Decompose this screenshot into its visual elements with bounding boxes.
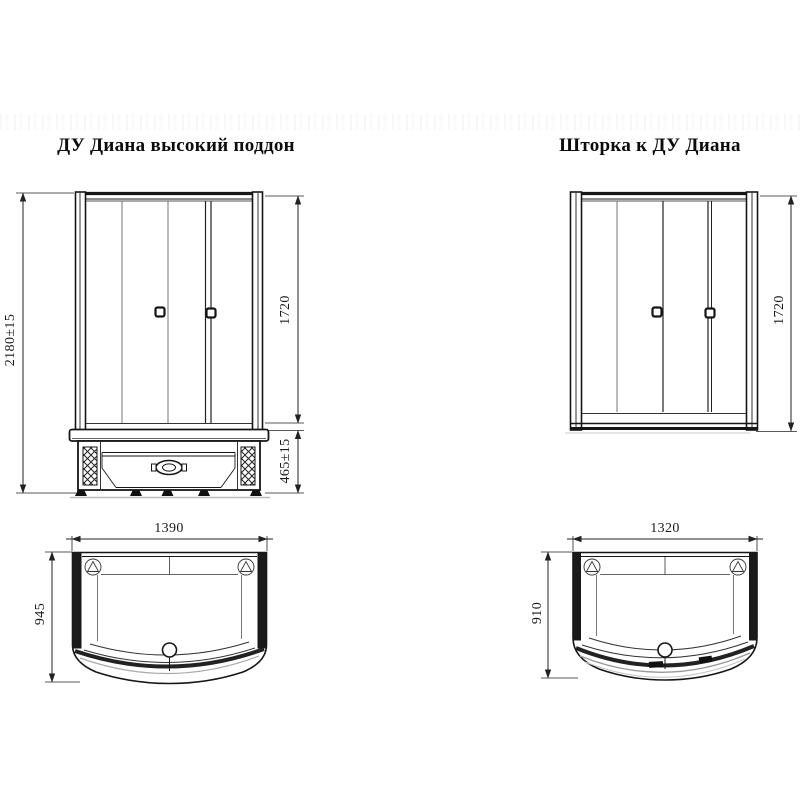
curtain-front-view xyxy=(565,192,758,433)
dim-label-curtain-tray-width: 1320 xyxy=(635,521,695,537)
dim-label-curtain-glass-height: 1720 xyxy=(772,280,788,340)
tray-feet xyxy=(75,491,262,497)
cabin-front-view xyxy=(70,192,271,498)
cabin-top-view xyxy=(73,553,267,684)
technical-drawing-page: ДУ Диана высокий поддон Шторка к ДУ Диан… xyxy=(0,0,800,800)
door-handle-icon xyxy=(156,308,216,318)
door-handle-icon xyxy=(653,308,715,318)
dim-label-cabin-tray-width: 1390 xyxy=(139,521,199,537)
drawing-canvas xyxy=(0,0,800,800)
dim-label-cabin-tray-height: 465±15 xyxy=(278,426,294,496)
dim-label-cabin-glass-height: 1720 xyxy=(278,280,294,340)
dim-label-cabin-tray-depth: 945 xyxy=(33,589,49,639)
dim-label-curtain-tray-depth: 910 xyxy=(530,588,546,638)
curtain-top-view xyxy=(573,553,757,681)
dim-label-cabin-total-height: 2180±15 xyxy=(3,300,19,380)
